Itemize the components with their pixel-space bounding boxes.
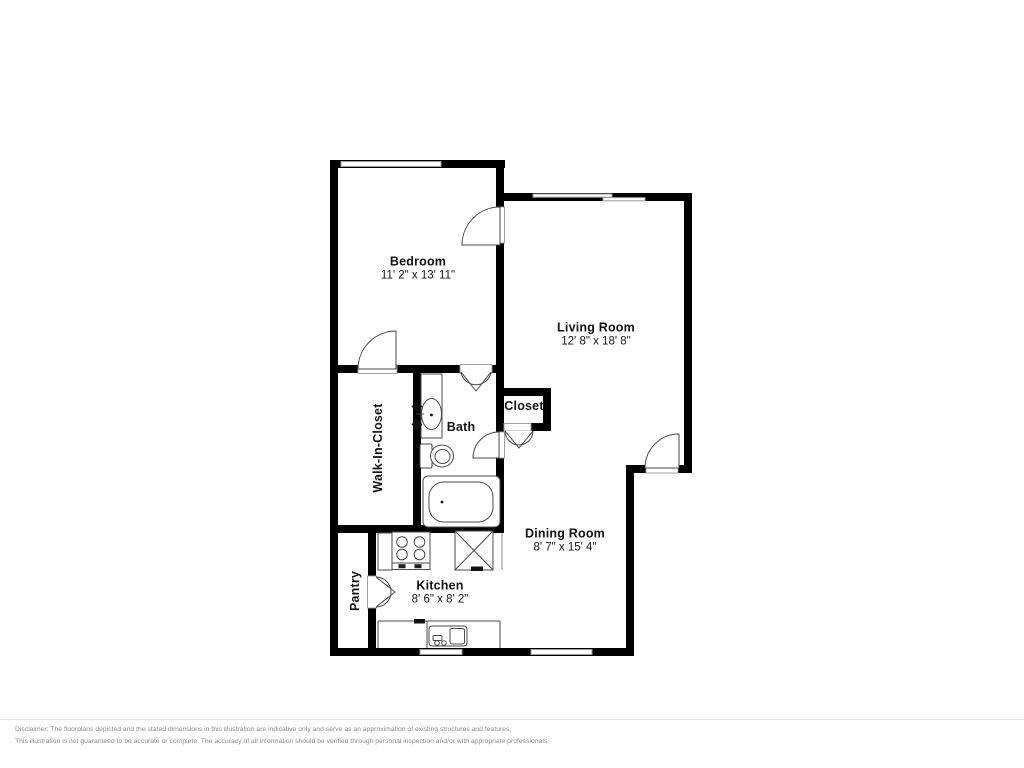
disclaimer-line-2: This illustration is not guaranteed to b… bbox=[15, 736, 549, 748]
floorplan-page: Bedroom 11' 2" x 13' 11" Living Room 12'… bbox=[0, 0, 1024, 768]
kitchen-sink bbox=[429, 626, 467, 646]
bath-hall-door bbox=[473, 432, 499, 458]
room-name: Pantry bbox=[348, 571, 362, 611]
room-name: Closet bbox=[504, 399, 543, 413]
room-name: Bedroom bbox=[381, 255, 455, 269]
floorplan-drawing bbox=[0, 0, 1024, 768]
room-label-closet: Closet bbox=[504, 399, 543, 413]
bath-bedroom-door bbox=[461, 372, 491, 391]
room-name: Kitchen bbox=[412, 579, 469, 593]
room-dims: 11' 2" x 13' 11" bbox=[381, 269, 455, 284]
room-dims: 8' 6" x 8' 2" bbox=[412, 593, 469, 608]
disclaimer: Disclaimer: The floorplans depicted and … bbox=[15, 724, 549, 748]
room-label-pantry: Pantry bbox=[348, 571, 362, 611]
refrigerator bbox=[455, 531, 502, 571]
kitchen-window bbox=[420, 650, 462, 655]
stove bbox=[378, 532, 430, 570]
room-name: Walk-In-Closet bbox=[371, 403, 385, 492]
dining-room-window bbox=[531, 650, 592, 655]
room-label-dining-room: Dining Room 8' 7" x 15' 4" bbox=[525, 527, 605, 556]
room-name: Bath bbox=[447, 420, 476, 434]
room-dims: 8' 7" x 15' 4" bbox=[525, 541, 605, 556]
closet-door bbox=[505, 431, 533, 448]
room-label-walk-in-closet: Walk-In-Closet bbox=[371, 403, 385, 492]
footer-divider bbox=[0, 719, 1024, 720]
toilet bbox=[420, 444, 454, 468]
disclaimer-line-1: Disclaimer: The floorplans depicted and … bbox=[15, 724, 549, 736]
bedroom-window bbox=[341, 162, 441, 167]
room-name: Dining Room bbox=[525, 527, 605, 541]
room-label-kitchen: Kitchen 8' 6" x 8' 2" bbox=[412, 579, 469, 608]
room-label-bath: Bath bbox=[447, 420, 476, 434]
living-room-window-a bbox=[533, 194, 612, 197]
room-name: Living Room bbox=[557, 321, 635, 335]
bedroom-door bbox=[462, 207, 500, 245]
pantry-door bbox=[376, 577, 395, 607]
entry-door bbox=[645, 434, 679, 468]
walk-in-closet-door bbox=[358, 331, 396, 369]
bathtub bbox=[423, 476, 500, 527]
room-label-bedroom: Bedroom 11' 2" x 13' 11" bbox=[381, 255, 455, 284]
room-dims: 12' 8" x 18' 8" bbox=[557, 335, 635, 350]
room-label-living-room: Living Room 12' 8" x 18' 8" bbox=[557, 321, 635, 350]
living-room-window-b bbox=[603, 198, 645, 201]
